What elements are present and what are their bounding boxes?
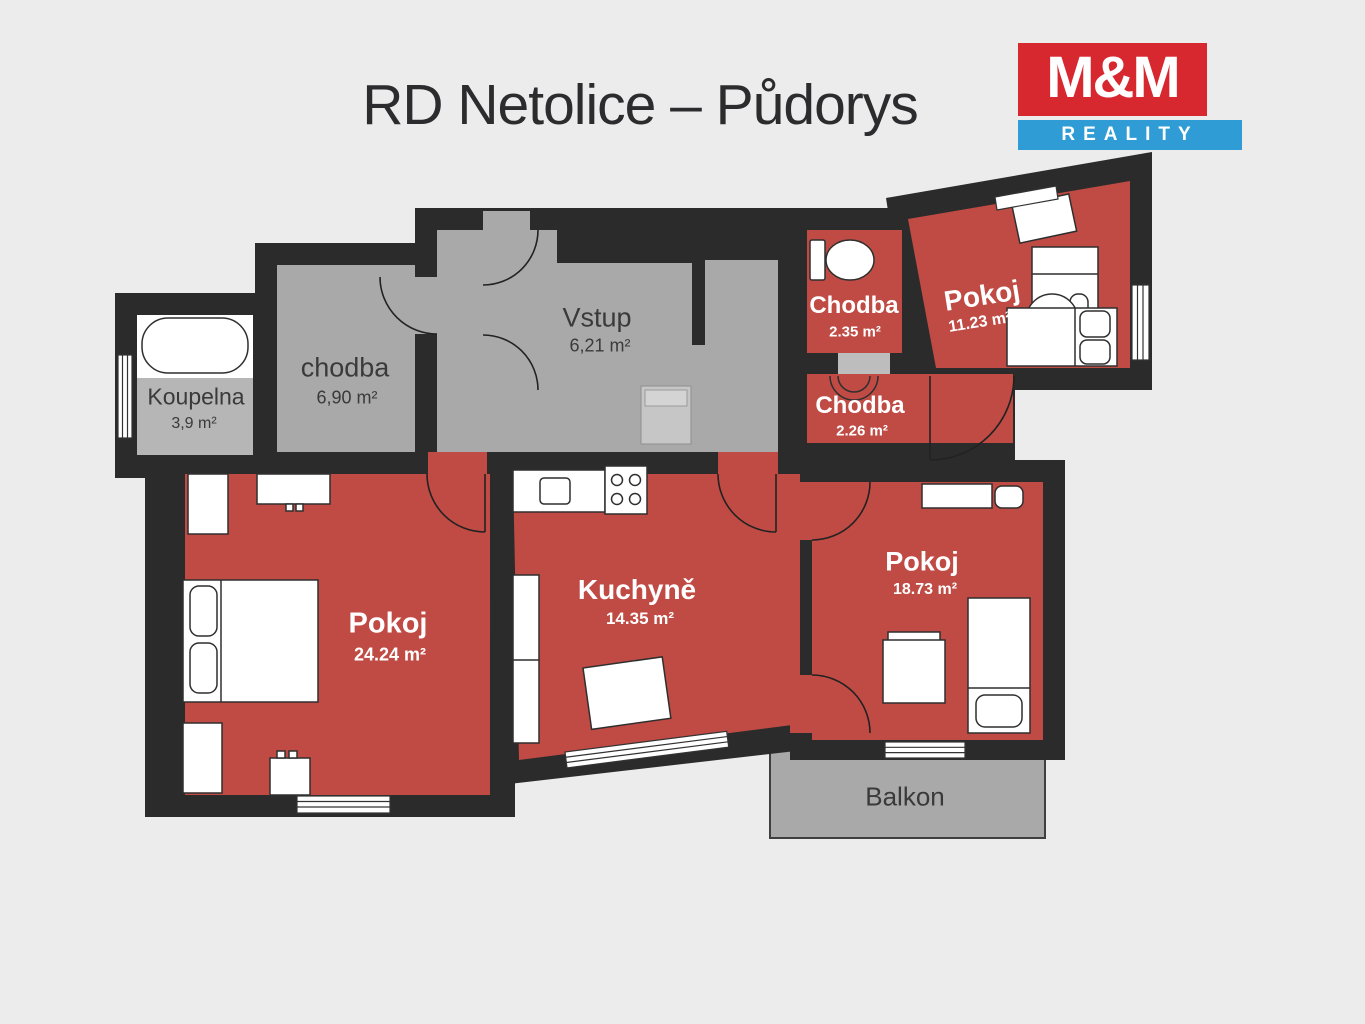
fridge-icon [513,575,539,743]
room-label-balkon: Balkon [865,782,945,813]
kitchen-counter-icon [513,470,605,512]
room-area-chodba: 6,90 m² [316,388,377,409]
corridor-opening [692,345,706,452]
desk-icon [270,751,310,795]
window-icon [297,796,390,813]
desk-icon [883,632,945,703]
floorplan-drawing [0,0,1365,1024]
room-area-pokoj-2424: 24.24 m² [354,645,426,666]
room-label-kuchyne: Kuchyně [578,574,696,606]
bathtub-icon [142,318,248,373]
door-opening [718,452,778,474]
room-label-vstup: Vstup [562,303,631,334]
room-label-pokoj-2424: Pokoj [349,608,428,641]
stove-icon [605,466,647,514]
bench-icon [641,386,691,444]
room-area-chodba-235: 2.35 m² [829,324,881,341]
room-area-chodba-226: 2.26 m² [836,423,888,440]
room-area-kuchyne: 14.35 m² [606,609,674,629]
room-label-pokoj-1873: Pokoj [885,547,959,578]
double-bed-icon [183,580,318,702]
single-bed-icon [968,598,1030,733]
floorplan-page: RD Netolice – Půdorys M&M REALITY [0,0,1365,1024]
door-sill [838,353,890,374]
room-label-chodba-226: Chodba [815,392,904,420]
door-opening [790,675,812,733]
kitchen-table-icon [583,657,671,730]
wardrobe-icon [188,474,228,534]
toilet-icon [810,240,874,280]
door-opening [415,277,437,334]
window-icon [1132,285,1149,360]
room-area-pokoj-1873: 18.73 m² [893,581,957,599]
dresser-icon [922,484,1023,508]
kitchen-sink-icon [540,478,570,504]
room-label-koupelna: Koupelna [147,384,244,411]
room-label-chodba: chodba [301,353,390,384]
entry-niche [483,211,530,230]
window-icon [118,355,132,438]
door-opening [790,482,812,540]
room-label-chodba-235: Chodba [809,292,898,320]
room-area-koupelna: 3,9 m² [171,415,216,433]
room-floor-vstup-corridor [705,260,778,452]
door-opening [428,452,487,474]
cabinet-icon [183,723,222,793]
single-bed-icon [1007,308,1117,366]
room-area-vstup: 6,21 m² [569,336,630,357]
window-icon [885,742,965,758]
wall-segment [557,230,695,263]
